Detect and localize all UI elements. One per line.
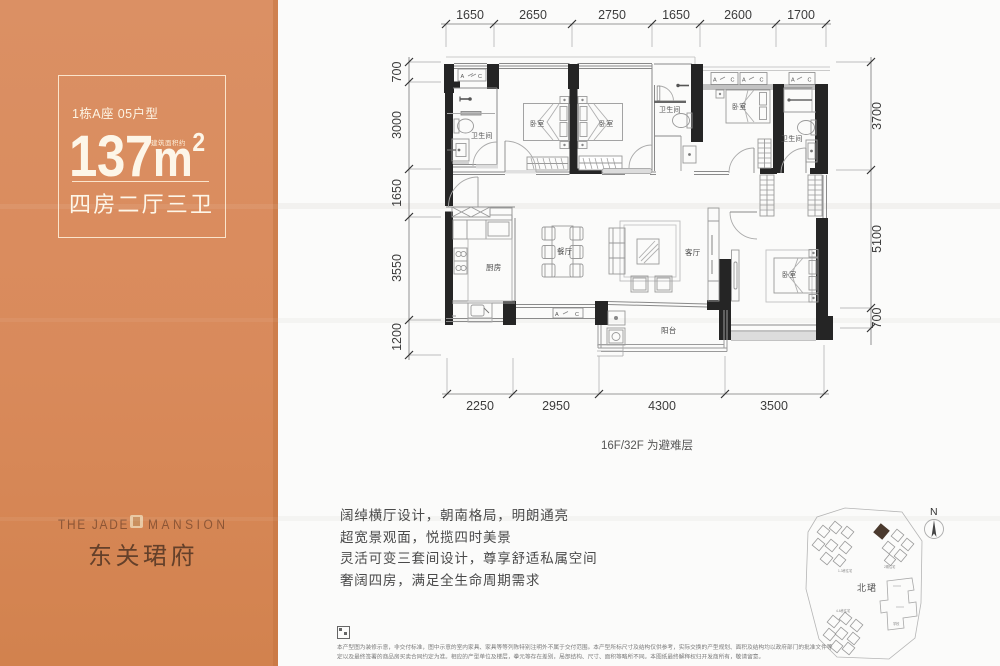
svg-text:1200: 1200 (390, 323, 404, 351)
svg-text:卫生间: 卫生间 (471, 131, 493, 140)
svg-text:北珺: 北珺 (857, 583, 877, 593)
svg-text:厨房: 厨房 (486, 262, 502, 272)
svg-text:1700: 1700 (787, 8, 815, 22)
svg-text:5100: 5100 (870, 225, 884, 253)
svg-text:卫生间: 卫生间 (659, 105, 681, 114)
svg-text:C: C (478, 74, 482, 80)
svg-text:卫生间: 卫生间 (781, 134, 803, 143)
svg-text:1650: 1650 (390, 179, 404, 207)
svg-text:卧室: 卧室 (599, 119, 613, 128)
svg-text:卧室: 卧室 (530, 119, 544, 128)
svg-text:3700: 3700 (870, 102, 884, 130)
svg-text:4-6栋住宅: 4-6栋住宅 (836, 608, 850, 613)
svg-text:700: 700 (390, 62, 404, 83)
svg-text:C: C (575, 312, 579, 318)
svg-text:A: A (742, 78, 746, 84)
svg-text:餐厅: 餐厅 (557, 247, 573, 256)
svg-text:1650: 1650 (662, 8, 690, 22)
svg-text:2950: 2950 (542, 399, 570, 413)
svg-text:C: C (808, 78, 812, 84)
svg-text:A: A (461, 74, 465, 80)
svg-text:客厅: 客厅 (685, 247, 701, 257)
svg-text:C: C (731, 78, 735, 84)
svg-text:3500: 3500 (760, 399, 788, 413)
svg-text:3000: 3000 (390, 111, 404, 139)
svg-text:2600: 2600 (724, 8, 752, 22)
svg-text:2650: 2650 (519, 8, 547, 22)
svg-text:1-3栋住宅: 1-3栋住宅 (838, 568, 852, 573)
svg-text:卧室: 卧室 (732, 102, 746, 111)
svg-text:4300: 4300 (648, 399, 676, 413)
svg-text:A: A (713, 78, 717, 84)
svg-text:N: N (930, 506, 938, 518)
svg-text:2750: 2750 (598, 8, 626, 22)
svg-text:700: 700 (870, 308, 884, 329)
svg-text:3550: 3550 (390, 254, 404, 282)
svg-text:A: A (791, 78, 795, 84)
svg-text:C: C (760, 78, 764, 84)
svg-text:2250: 2250 (466, 399, 494, 413)
svg-text:阳台: 阳台 (661, 325, 677, 335)
svg-text:卧室: 卧室 (782, 270, 796, 279)
svg-text:2期住宅: 2期住宅 (884, 564, 895, 569)
svg-text:学校: 学校 (893, 621, 900, 626)
svg-text:A: A (555, 312, 559, 318)
svg-text:1650: 1650 (456, 8, 484, 22)
